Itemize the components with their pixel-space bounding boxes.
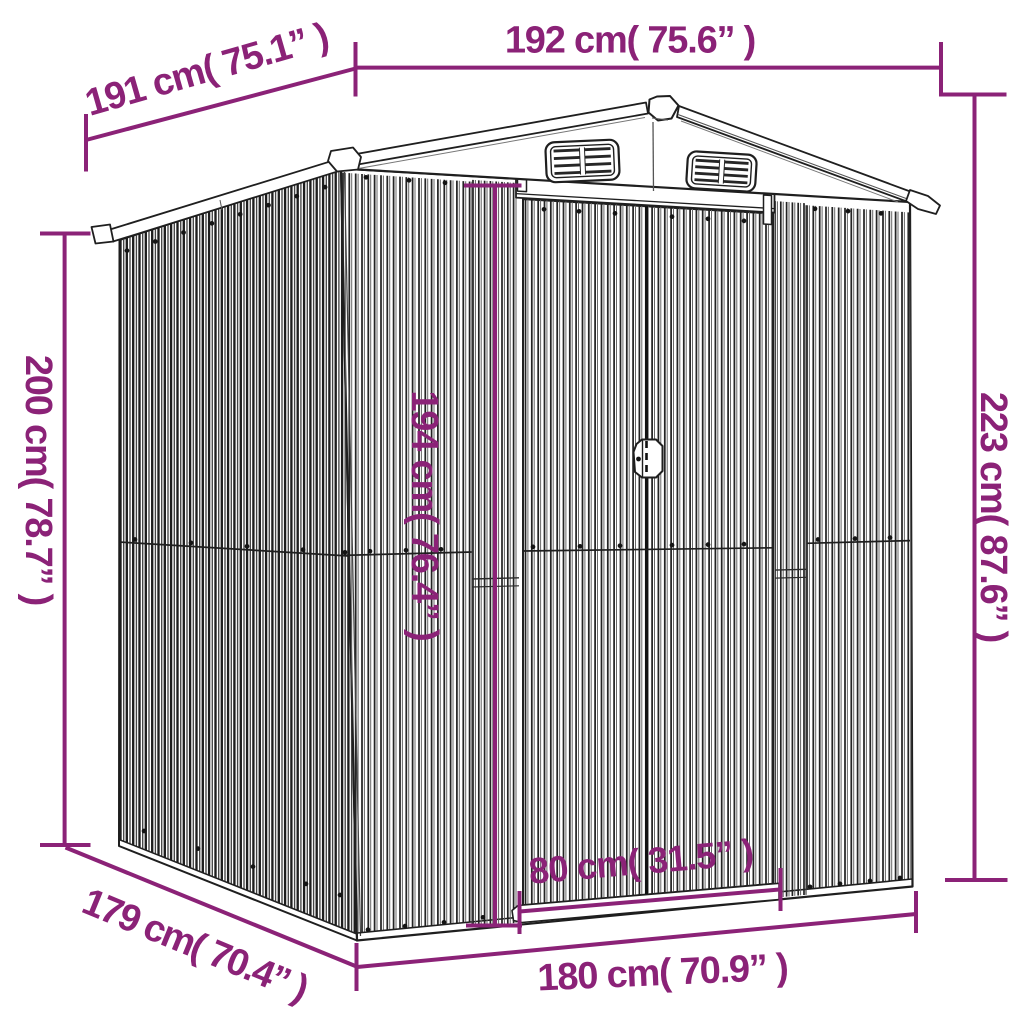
svg-text:192 cm( 75.6” ): 192 cm( 75.6” ) <box>505 19 755 61</box>
svg-text:194 cm( 76.4” ): 194 cm( 76.4” ) <box>403 390 445 640</box>
svg-text:200 cm( 78.7” ): 200 cm( 78.7” ) <box>17 355 59 605</box>
svg-text:223 cm( 87.6” ): 223 cm( 87.6” ) <box>972 392 1014 642</box>
